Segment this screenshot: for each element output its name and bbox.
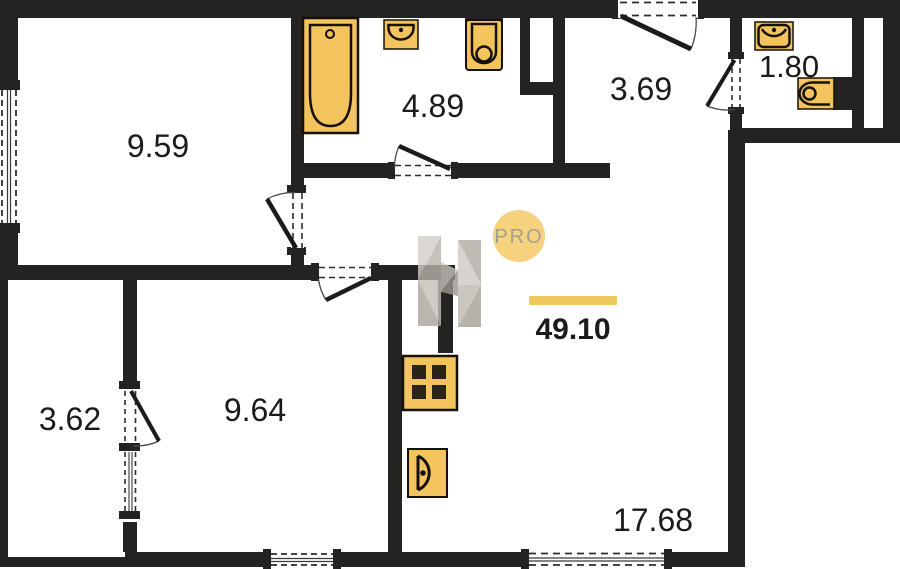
window-room	[271, 552, 333, 567]
room-area-bedroom: 9.59	[127, 128, 189, 164]
room-area-bathroom: 4.89	[402, 88, 464, 124]
room-area-room: 9.64	[224, 392, 286, 428]
room-area-living-kitchen: 17.68	[613, 502, 693, 538]
washbasin-icon	[755, 22, 793, 50]
stove-icon	[403, 356, 457, 410]
room-area-hallway: 3.69	[610, 71, 672, 107]
pro-badge-label: PRO	[494, 226, 543, 248]
floor-plan-page: PRO 49.10 9.59 4.89 3.69 1.80 3.62 9.64 …	[0, 0, 900, 569]
room-area-loggia: 3.62	[39, 401, 101, 437]
room-area-wc: 1.80	[759, 49, 819, 84]
window-loggia	[123, 451, 137, 511]
vent-shaft	[530, 18, 553, 82]
total-area-underline	[529, 296, 617, 305]
kitchen-sink-icon	[408, 449, 447, 497]
bathtub-icon	[303, 18, 358, 133]
window-living	[529, 552, 664, 567]
window-bedroom	[0, 90, 18, 223]
floor-plan-svg: PRO 49.10 9.59 4.89 3.69 1.80 3.62 9.64 …	[0, 0, 900, 569]
pro-badge: PRO	[493, 210, 545, 262]
washbasin-icon	[384, 20, 418, 49]
total-area-label: 49.10	[535, 313, 610, 346]
vent-shaft	[864, 18, 883, 128]
toilet-icon	[465, 12, 503, 70]
